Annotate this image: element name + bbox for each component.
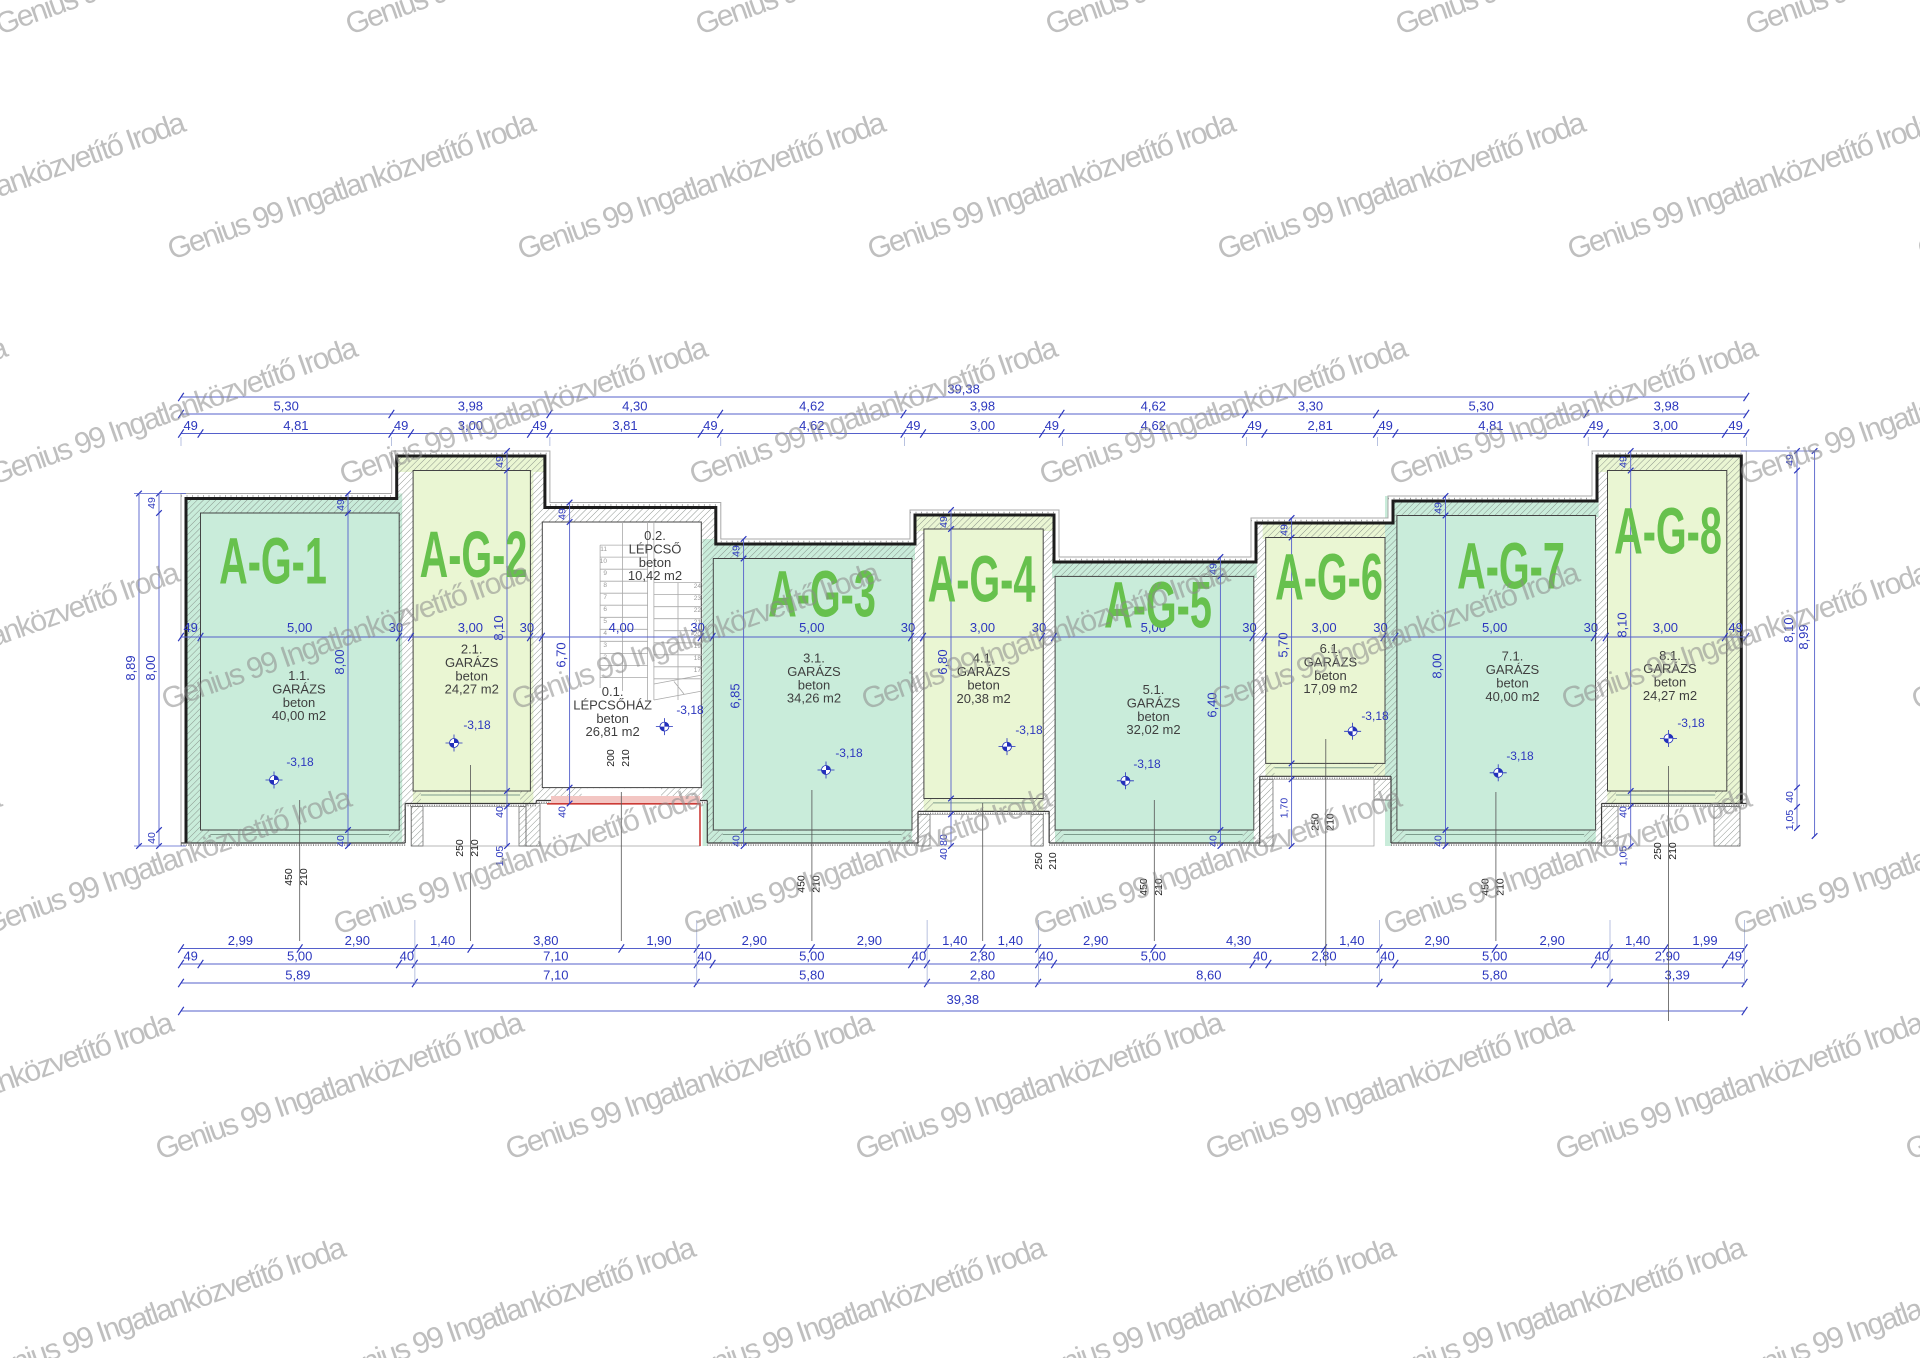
svg-text:40: 40 xyxy=(494,806,506,818)
svg-text:2,90: 2,90 xyxy=(1655,949,1680,964)
svg-text:-3,18: -3,18 xyxy=(1506,749,1534,763)
svg-text:4: 4 xyxy=(603,630,607,637)
svg-text:3,00: 3,00 xyxy=(970,620,995,635)
svg-text:24,27 m2: 24,27 m2 xyxy=(1643,688,1697,703)
svg-text:3,00: 3,00 xyxy=(458,620,483,635)
svg-text:49: 49 xyxy=(183,949,197,964)
svg-text:20,38 m2: 20,38 m2 xyxy=(956,691,1010,706)
svg-text:2,80: 2,80 xyxy=(1311,949,1336,964)
svg-text:49: 49 xyxy=(1378,418,1392,433)
svg-text:39,38: 39,38 xyxy=(947,992,980,1007)
svg-text:40,00 m2: 40,00 m2 xyxy=(272,708,326,723)
svg-text:3,00: 3,00 xyxy=(1653,620,1678,635)
svg-text:8,00: 8,00 xyxy=(143,655,158,680)
svg-text:210: 210 xyxy=(620,749,632,767)
svg-text:4,62: 4,62 xyxy=(799,399,824,414)
svg-text:26,81 m2: 26,81 m2 xyxy=(585,724,639,739)
svg-text:8,00: 8,00 xyxy=(1430,653,1445,678)
svg-text:40: 40 xyxy=(1595,949,1609,964)
svg-text:32,02 m2: 32,02 m2 xyxy=(1126,722,1180,737)
svg-text:49: 49 xyxy=(1045,418,1059,433)
svg-text:1,05: 1,05 xyxy=(1784,810,1796,831)
svg-text:5: 5 xyxy=(603,618,607,625)
svg-text:-3,18: -3,18 xyxy=(835,746,863,760)
svg-text:-3,18: -3,18 xyxy=(1133,757,1161,771)
svg-text:6: 6 xyxy=(603,606,607,613)
svg-text:49: 49 xyxy=(335,499,347,511)
svg-text:49: 49 xyxy=(557,508,569,520)
svg-text:2,81: 2,81 xyxy=(1308,418,1333,433)
svg-text:5,89: 5,89 xyxy=(285,968,310,983)
svg-text:200: 200 xyxy=(605,749,617,767)
svg-text:30: 30 xyxy=(901,620,915,635)
svg-text:2,90: 2,90 xyxy=(1424,933,1449,948)
svg-text:1,40: 1,40 xyxy=(1625,933,1650,948)
svg-text:8,60: 8,60 xyxy=(1196,968,1221,983)
svg-text:1,40: 1,40 xyxy=(430,933,455,948)
svg-text:49: 49 xyxy=(394,418,408,433)
svg-text:3: 3 xyxy=(603,642,607,649)
svg-text:2,99: 2,99 xyxy=(228,933,253,948)
svg-text:8,10: 8,10 xyxy=(491,615,506,640)
svg-text:3,00: 3,00 xyxy=(970,418,995,433)
svg-text:5,00: 5,00 xyxy=(1141,949,1166,964)
svg-text:4,00: 4,00 xyxy=(609,620,634,635)
svg-text:5,30: 5,30 xyxy=(1469,399,1494,414)
svg-text:2,90: 2,90 xyxy=(857,933,882,948)
svg-text:5,30: 5,30 xyxy=(274,399,299,414)
svg-text:210: 210 xyxy=(1047,852,1059,870)
svg-text:5,00: 5,00 xyxy=(1482,620,1507,635)
svg-text:11: 11 xyxy=(600,546,607,553)
svg-text:1,99: 1,99 xyxy=(1692,933,1717,948)
svg-text:8: 8 xyxy=(603,582,607,589)
svg-text:40: 40 xyxy=(1618,806,1630,818)
svg-text:30: 30 xyxy=(520,620,534,635)
svg-text:40: 40 xyxy=(1433,835,1445,847)
svg-text:40: 40 xyxy=(1784,791,1796,803)
svg-text:5,00: 5,00 xyxy=(1482,949,1507,964)
svg-text:4,62: 4,62 xyxy=(1141,399,1166,414)
svg-text:4,30: 4,30 xyxy=(622,399,647,414)
svg-text:3,81: 3,81 xyxy=(612,418,637,433)
svg-text:49: 49 xyxy=(731,545,743,557)
svg-text:40: 40 xyxy=(912,949,926,964)
svg-text:3,80: 3,80 xyxy=(533,933,558,948)
svg-text:34,26 m2: 34,26 m2 xyxy=(787,691,841,706)
svg-text:22: 22 xyxy=(694,607,702,614)
svg-text:A-G-1: A-G-1 xyxy=(219,524,327,598)
svg-text:1,70: 1,70 xyxy=(1279,798,1291,819)
svg-text:40: 40 xyxy=(335,835,347,847)
svg-text:2,80: 2,80 xyxy=(970,949,995,964)
svg-text:40: 40 xyxy=(1253,949,1267,964)
svg-text:4,81: 4,81 xyxy=(283,418,308,433)
svg-text:40: 40 xyxy=(697,949,711,964)
svg-text:40: 40 xyxy=(400,949,414,964)
svg-text:8,10: 8,10 xyxy=(1615,612,1630,637)
svg-text:40: 40 xyxy=(557,806,569,818)
svg-text:40: 40 xyxy=(1380,949,1394,964)
svg-text:3,00: 3,00 xyxy=(1311,620,1336,635)
svg-text:2,90: 2,90 xyxy=(742,933,767,948)
svg-text:40,00 m2: 40,00 m2 xyxy=(1485,689,1539,704)
svg-text:5,80: 5,80 xyxy=(1482,968,1507,983)
svg-text:49: 49 xyxy=(183,620,197,635)
svg-text:17: 17 xyxy=(694,667,702,674)
svg-text:30: 30 xyxy=(1242,620,1256,635)
svg-text:2,90: 2,90 xyxy=(1540,933,1565,948)
svg-text:40: 40 xyxy=(731,835,743,847)
svg-text:40: 40 xyxy=(146,832,158,844)
svg-text:-3,18: -3,18 xyxy=(1361,709,1389,723)
svg-text:5,00: 5,00 xyxy=(287,949,312,964)
svg-text:24: 24 xyxy=(694,583,702,590)
svg-text:40: 40 xyxy=(1039,949,1053,964)
svg-text:2,80: 2,80 xyxy=(970,968,995,983)
svg-text:7,10: 7,10 xyxy=(543,968,568,983)
svg-text:24,27 m2: 24,27 m2 xyxy=(445,682,499,697)
svg-text:49: 49 xyxy=(1433,502,1445,514)
svg-text:49: 49 xyxy=(494,456,506,468)
svg-text:250: 250 xyxy=(1033,852,1045,870)
svg-text:18: 18 xyxy=(694,655,702,662)
svg-text:3,00: 3,00 xyxy=(1653,418,1678,433)
svg-text:5,80: 5,80 xyxy=(799,968,824,983)
svg-text:-3,18: -3,18 xyxy=(676,703,704,717)
svg-text:10,42 m2: 10,42 m2 xyxy=(628,568,682,583)
svg-text:8,89: 8,89 xyxy=(123,655,138,680)
svg-text:4,30: 4,30 xyxy=(1226,933,1251,948)
svg-text:210: 210 xyxy=(469,839,481,857)
svg-text:49: 49 xyxy=(703,418,717,433)
svg-text:5,00: 5,00 xyxy=(799,949,824,964)
svg-text:49: 49 xyxy=(1279,524,1291,536)
svg-text:1,40: 1,40 xyxy=(998,933,1023,948)
svg-text:5,70: 5,70 xyxy=(1276,632,1291,657)
svg-text:3,98: 3,98 xyxy=(970,399,995,414)
svg-text:-3,18: -3,18 xyxy=(1015,723,1043,737)
svg-text:49: 49 xyxy=(146,497,158,509)
svg-text:-3,18: -3,18 xyxy=(1677,716,1705,730)
svg-text:1,90: 1,90 xyxy=(646,933,671,948)
svg-text:49: 49 xyxy=(1247,418,1261,433)
svg-text:A-G-8: A-G-8 xyxy=(1614,494,1722,568)
svg-text:-3,18: -3,18 xyxy=(463,718,491,732)
svg-text:10: 10 xyxy=(600,558,608,565)
svg-text:A-G-4: A-G-4 xyxy=(928,542,1036,616)
svg-text:A-G-6: A-G-6 xyxy=(1275,540,1383,614)
svg-text:49: 49 xyxy=(906,418,920,433)
svg-text:1,40: 1,40 xyxy=(942,933,967,948)
svg-text:49: 49 xyxy=(1618,456,1630,468)
svg-text:210: 210 xyxy=(298,868,310,886)
svg-text:49: 49 xyxy=(1728,418,1742,433)
svg-text:6,85: 6,85 xyxy=(728,683,743,708)
svg-text:49: 49 xyxy=(938,516,950,528)
svg-text:3,98: 3,98 xyxy=(1654,399,1679,414)
svg-text:9: 9 xyxy=(603,570,607,577)
svg-text:1,40: 1,40 xyxy=(1339,933,1364,948)
svg-text:7: 7 xyxy=(603,594,607,601)
svg-text:23: 23 xyxy=(694,595,702,602)
svg-text:30: 30 xyxy=(1584,620,1598,635)
svg-text:2,90: 2,90 xyxy=(1083,933,1108,948)
svg-text:7,10: 7,10 xyxy=(543,949,568,964)
svg-text:450: 450 xyxy=(283,868,295,886)
svg-text:49: 49 xyxy=(1728,949,1742,964)
svg-text:210: 210 xyxy=(1667,842,1679,860)
svg-text:-3,18: -3,18 xyxy=(286,755,314,769)
svg-text:250: 250 xyxy=(454,839,466,857)
